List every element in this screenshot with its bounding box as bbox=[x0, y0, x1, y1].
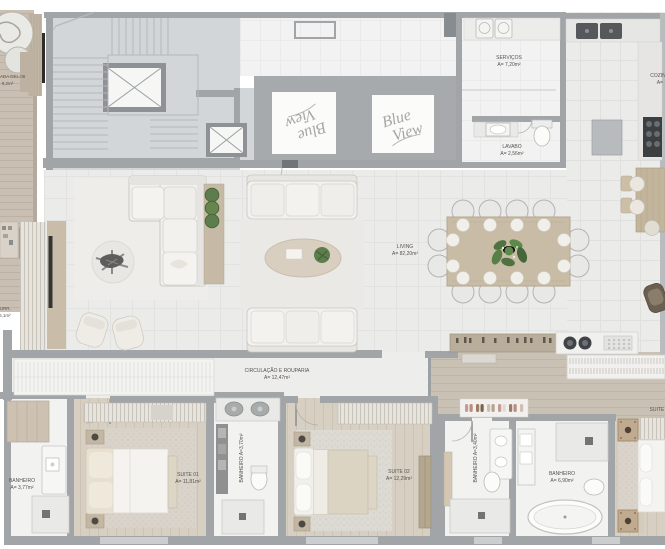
svg-text:A= 12,29m²: A= 12,29m² bbox=[386, 476, 412, 482]
svg-text:LIVING: LIVING bbox=[397, 244, 414, 250]
svg-text:A= 12,47m²: A= 12,47m² bbox=[264, 375, 290, 381]
svg-text:A= 7,20m²: A= 7,20m² bbox=[497, 62, 521, 68]
svg-text:A= 18,: A= 18, bbox=[657, 80, 665, 86]
svg-text:COZINHA G: COZINHA G bbox=[650, 73, 665, 79]
svg-text:SERVIÇOS: SERVIÇOS bbox=[496, 55, 522, 61]
svg-text:SUITE MASTER: SUITE MASTER bbox=[650, 407, 665, 413]
svg-text:A= 2,56m²: A= 2,56m² bbox=[500, 151, 524, 157]
svg-text:A= 6,90m²: A= 6,90m² bbox=[550, 478, 574, 484]
svg-text:A= 3,77m²: A= 3,77m² bbox=[10, 485, 34, 491]
svg-text:A= 82,20m²: A= 82,20m² bbox=[392, 251, 418, 257]
svg-text:BANHEIRO: BANHEIRO bbox=[549, 471, 575, 477]
svg-text:SACADA DEL.06: SACADA DEL.06 bbox=[0, 74, 26, 79]
svg-text:BANHEIRO A=3,70m²: BANHEIRO A=3,70m² bbox=[239, 433, 245, 482]
svg-text:CHURR.: CHURR. bbox=[0, 306, 11, 311]
svg-text:CIRCULAÇÃO E ROUPARIA: CIRCULAÇÃO E ROUPARIA bbox=[245, 367, 310, 374]
svg-text:BANHEIRO: BANHEIRO bbox=[9, 478, 35, 484]
svg-text:LAVABO: LAVABO bbox=[502, 144, 521, 150]
svg-text:SUITE 02: SUITE 02 bbox=[388, 469, 410, 475]
svg-text:A=6,1m²: A=6,1m² bbox=[0, 313, 11, 318]
svg-text:SUITE 01: SUITE 01 bbox=[177, 472, 199, 478]
svg-text:BANHEIRO A=3,40m²: BANHEIRO A=3,40m² bbox=[473, 433, 479, 482]
svg-text:A= 9,2m²: A= 9,2m² bbox=[0, 81, 14, 86]
svg-text:A= 11,81m²: A= 11,81m² bbox=[175, 479, 201, 485]
